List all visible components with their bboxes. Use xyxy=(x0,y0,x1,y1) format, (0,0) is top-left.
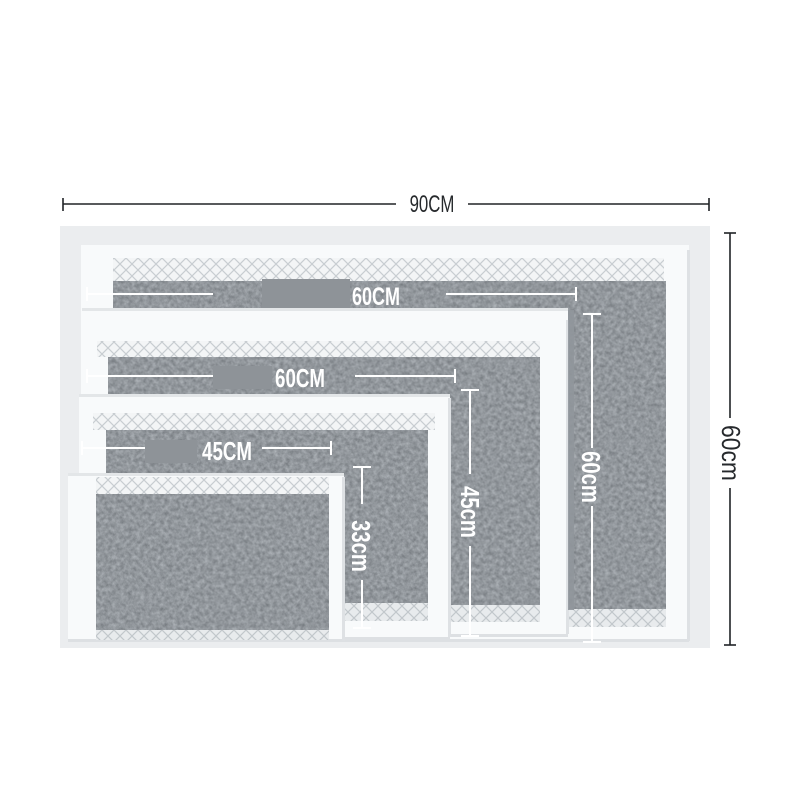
svg-text:45cm: 45cm xyxy=(456,486,485,538)
svg-text:33cm: 33cm xyxy=(347,520,376,572)
svg-text:60CM: 60CM xyxy=(275,363,325,393)
svg-text:60CM: 60CM xyxy=(352,282,400,311)
svg-text:90CM: 90CM xyxy=(410,191,455,218)
svg-text:60cm: 60cm xyxy=(577,451,606,503)
svg-text:60cm: 60cm xyxy=(716,425,745,481)
svg-text:45CM: 45CM xyxy=(202,436,252,466)
